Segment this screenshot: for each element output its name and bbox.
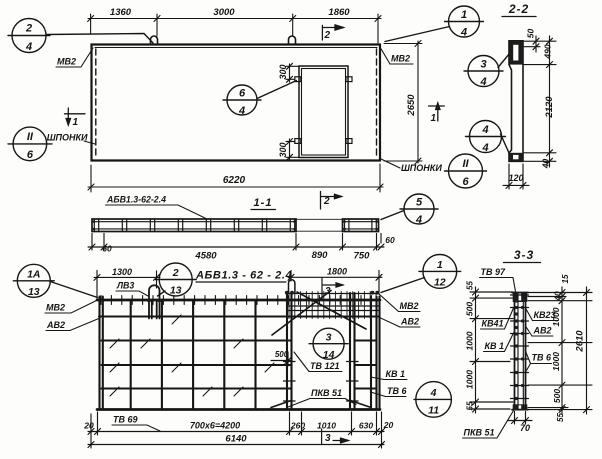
svg-text:АБВ1.3 - 62 - 2.4: АБВ1.3 - 62 - 2.4 [195,270,292,282]
svg-text:500: 500 [275,350,289,359]
svg-text:60: 60 [385,235,395,245]
svg-text:4: 4 [25,41,32,53]
svg-text:2650: 2650 [406,94,417,117]
svg-text:6: 6 [27,149,34,161]
svg-text:1300: 1300 [112,267,132,277]
svg-text:2: 2 [324,30,331,41]
svg-text:3: 3 [326,332,332,344]
svg-text:700х6=4200: 700х6=4200 [190,421,240,431]
svg-text:14: 14 [323,349,335,361]
svg-text:2: 2 [172,267,179,279]
svg-text:1: 1 [461,9,467,21]
svg-text:15: 15 [561,274,570,283]
svg-text:ШПОНКИ: ШПОНКИ [47,133,88,143]
svg-text:ТВ 97: ТВ 97 [481,267,507,277]
svg-text:70: 70 [520,423,530,433]
svg-text:1-1: 1-1 [254,197,273,209]
svg-text:ПКВ 51: ПКВ 51 [311,388,342,398]
svg-text:300: 300 [278,142,288,157]
svg-text:1360: 1360 [110,7,132,18]
svg-text:500: 500 [465,302,475,316]
svg-text:4: 4 [481,124,488,136]
svg-text:1: 1 [73,117,79,128]
svg-text:13: 13 [170,285,182,297]
svg-text:МВ2: МВ2 [400,301,419,311]
svg-text:2: 2 [323,196,330,207]
svg-text:1000: 1000 [465,331,475,350]
svg-text:890: 890 [312,250,329,261]
svg-text:1: 1 [437,259,443,271]
svg-text:2: 2 [25,23,32,35]
svg-text:300: 300 [278,64,288,79]
svg-text:6: 6 [462,176,469,188]
svg-text:490: 490 [543,44,553,59]
svg-text:ТВ 6: ТВ 6 [387,386,407,396]
svg-text:20: 20 [383,420,394,430]
svg-text:II: II [27,131,34,143]
svg-text:4: 4 [481,142,488,154]
svg-text:1860: 1860 [328,7,350,18]
svg-text:АВ2: АВ2 [533,326,552,336]
svg-text:55: 55 [466,401,475,410]
svg-text:4: 4 [238,105,245,117]
svg-text:3: 3 [325,286,331,297]
svg-text:4580: 4580 [194,251,217,262]
svg-text:2610: 2610 [575,330,586,353]
svg-text:КВ 1: КВ 1 [386,369,406,379]
svg-text:40: 40 [541,159,551,170]
svg-text:1А: 1А [27,269,40,281]
svg-text:12: 12 [434,277,446,289]
svg-text:ШПОНКИ: ШПОНКИ [401,163,442,173]
svg-text:5: 5 [416,197,423,209]
svg-text:3-3: 3-3 [514,248,534,262]
svg-text:КВ 1: КВ 1 [485,341,505,351]
svg-text:120: 120 [508,173,523,183]
svg-text:МВ2: МВ2 [57,57,76,67]
svg-text:6: 6 [239,88,246,100]
svg-text:4: 4 [479,76,486,88]
svg-text:13: 13 [28,286,40,298]
svg-text:55: 55 [556,413,565,422]
svg-text:1: 1 [431,113,437,124]
svg-text:4: 4 [460,27,467,39]
svg-text:750: 750 [354,251,371,262]
svg-text:3000: 3000 [213,7,235,18]
svg-text:60: 60 [102,244,112,254]
svg-text:500: 500 [552,389,562,403]
svg-text:АБВ1.3-62-2.4: АБВ1.3-62-2.4 [106,195,166,205]
svg-text:МВ2: МВ2 [46,303,65,313]
svg-text:КВ41: КВ41 [482,319,504,329]
svg-text:ТВ 69: ТВ 69 [113,415,138,425]
svg-text:2-2: 2-2 [508,2,529,16]
svg-text:3: 3 [480,59,486,71]
svg-text:4: 4 [415,214,422,226]
svg-text:ЛВ3: ЛВ3 [116,281,134,291]
svg-text:ПКВ 51: ПКВ 51 [464,428,495,438]
svg-text:260: 260 [290,421,305,431]
svg-text:20: 20 [83,421,94,431]
svg-text:ТВ 121: ТВ 121 [310,361,340,371]
svg-text:МВ2: МВ2 [391,54,410,64]
svg-text:1000: 1000 [465,370,475,389]
svg-text:50: 50 [526,29,536,39]
svg-text:1000: 1000 [551,352,561,371]
svg-text:6140: 6140 [225,434,247,445]
svg-text:4: 4 [430,387,437,399]
svg-text:1800: 1800 [327,267,347,277]
svg-text:АВ2: АВ2 [46,320,65,330]
svg-text:2120: 2120 [544,96,555,119]
svg-text:АВ2: АВ2 [400,317,419,327]
svg-text:1010: 1010 [317,421,336,431]
svg-text:3: 3 [325,433,331,444]
svg-text:II: II [462,158,469,170]
svg-text:КВ23: КВ23 [534,310,556,320]
svg-text:6220: 6220 [223,175,246,186]
svg-text:ТВ 6: ТВ 6 [532,353,552,363]
svg-text:55: 55 [466,281,475,290]
svg-text:630: 630 [359,421,373,431]
svg-text:11: 11 [428,405,439,417]
